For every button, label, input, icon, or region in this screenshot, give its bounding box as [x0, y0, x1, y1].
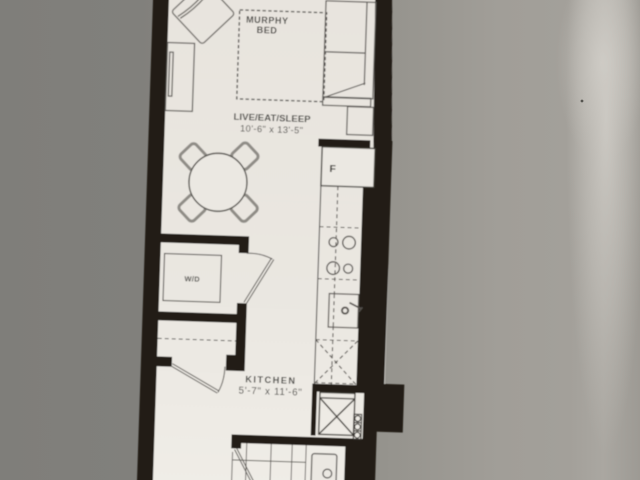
- svg-text:KITCHEN: KITCHEN: [245, 374, 297, 386]
- svg-text:W/D: W/D: [184, 274, 200, 284]
- svg-text:BED: BED: [256, 25, 277, 36]
- svg-text:F: F: [329, 163, 336, 175]
- svg-text:5'-7" x 11'-6": 5'-7" x 11'-6": [238, 386, 302, 399]
- svg-text:MURPHY: MURPHY: [246, 15, 289, 26]
- svg-text:10'-6" x 13'-5": 10'-6" x 13'-5": [240, 123, 304, 135]
